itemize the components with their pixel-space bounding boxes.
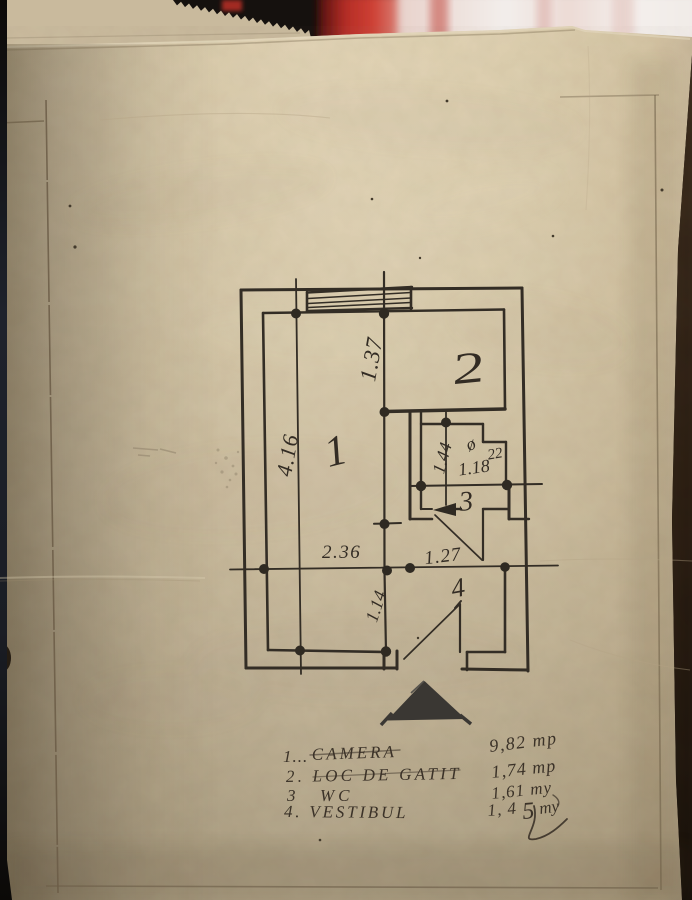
svg-text:2.36: 2.36: [322, 542, 361, 563]
svg-text:3: 3: [457, 486, 475, 518]
svg-text:5: 5: [521, 798, 535, 825]
svg-text:1...: 1...: [283, 747, 308, 766]
svg-text:2. LOC DE GATIT: 2. LOC DE GATIT: [286, 764, 462, 786]
svg-text:4. VESTIBUL: 4. VESTIBUL: [284, 802, 408, 822]
svg-text:1, 4: 1, 4: [487, 798, 518, 819]
